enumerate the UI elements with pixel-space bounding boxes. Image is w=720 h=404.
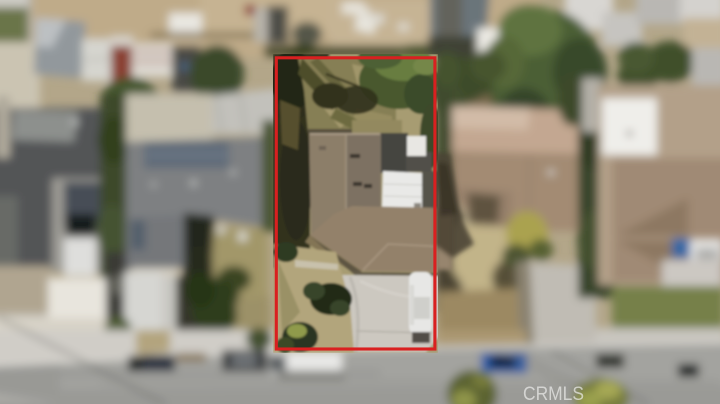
svg-text:CRMLS: CRMLS: [523, 384, 584, 404]
